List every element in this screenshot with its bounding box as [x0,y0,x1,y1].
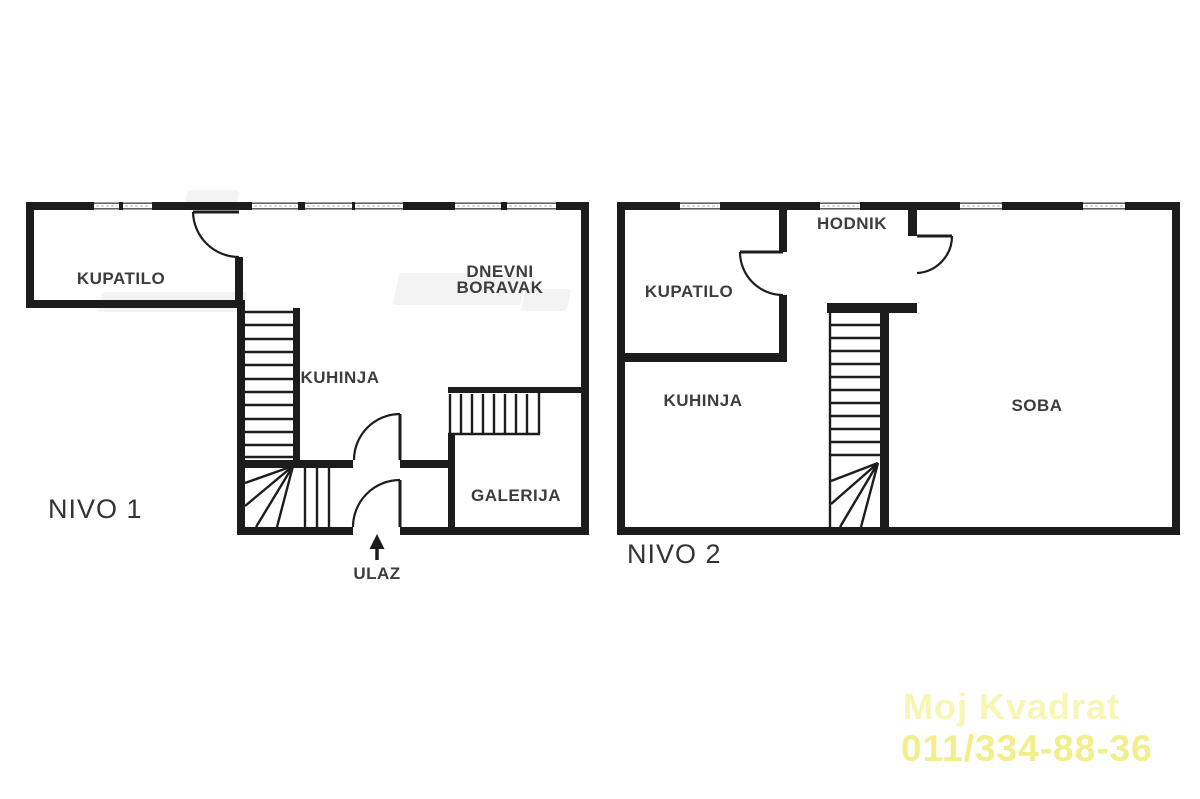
level2-kupatilo-east-wall-lower [779,295,787,362]
level1-hall-north-wall [237,460,353,468]
level2-bottom-wall [617,527,1180,535]
room-label-kuhinja-l2: KUHINJA [633,393,773,409]
level2-plan [617,201,1180,535]
level1-right-wall [581,202,589,535]
stair-winder-fan [245,466,293,527]
stair-winder-fan [831,463,878,527]
level2-walls [617,202,1180,535]
entrance-arrow-icon [370,534,385,560]
room-label-soba: SOBA [967,398,1107,414]
level1-title: NIVO 1 [48,494,143,525]
stair-turn-treads [305,468,329,527]
kupatilo-door [193,212,239,257]
level1-kupatilo-east-wall [235,257,243,308]
room-label-dnevni-boravak: DNEVNI BORAVAK [450,264,550,296]
soba-door [917,236,952,273]
stair-treads [831,325,880,455]
level1-bottom-wall [237,527,589,535]
level1-staircase [245,312,329,527]
level1-stair-west-wall [237,300,245,535]
galerija-stair-treads [450,394,527,433]
level1-living-south-wall [448,387,589,393]
entrance-label: ULAZ [307,566,447,582]
entrance-door [353,480,400,536]
level2-doors [740,236,952,295]
room-label-galerija: GALERIJA [446,488,586,504]
galerija-staircase [448,393,540,434]
level2-title: NIVO 2 [627,539,722,570]
room-label-kuhinja-l1: KUHINJA [270,370,410,386]
level1-kupatilo-south-wall [26,300,245,308]
level2-stair-east-wall [880,303,889,535]
level1-hall-north-wall2 [400,460,455,468]
level2-kupatilo-south-wall [617,353,787,362]
floorplan-page: { "level1": { "label": "NIVO 1", "rooms"… [0,0,1200,799]
level1-left-wall [26,202,34,308]
watermark-brand: Moj Kvadrat [903,686,1120,728]
level2-right-wall [1172,202,1180,535]
watermark-phone: 011/334-88-36 [901,728,1153,770]
kitchen-door [354,414,400,460]
level2-stair-north-wall [827,303,917,313]
room-label-kupatilo-l2: KUPATILO [619,284,759,300]
room-label-kupatilo-l1: KUPATILO [51,271,191,287]
level1-galerija-west-wall [448,435,455,535]
level2-staircase [830,313,880,527]
level2-left-wall [617,202,625,535]
room-label-hodnik: HODNIK [782,216,922,232]
